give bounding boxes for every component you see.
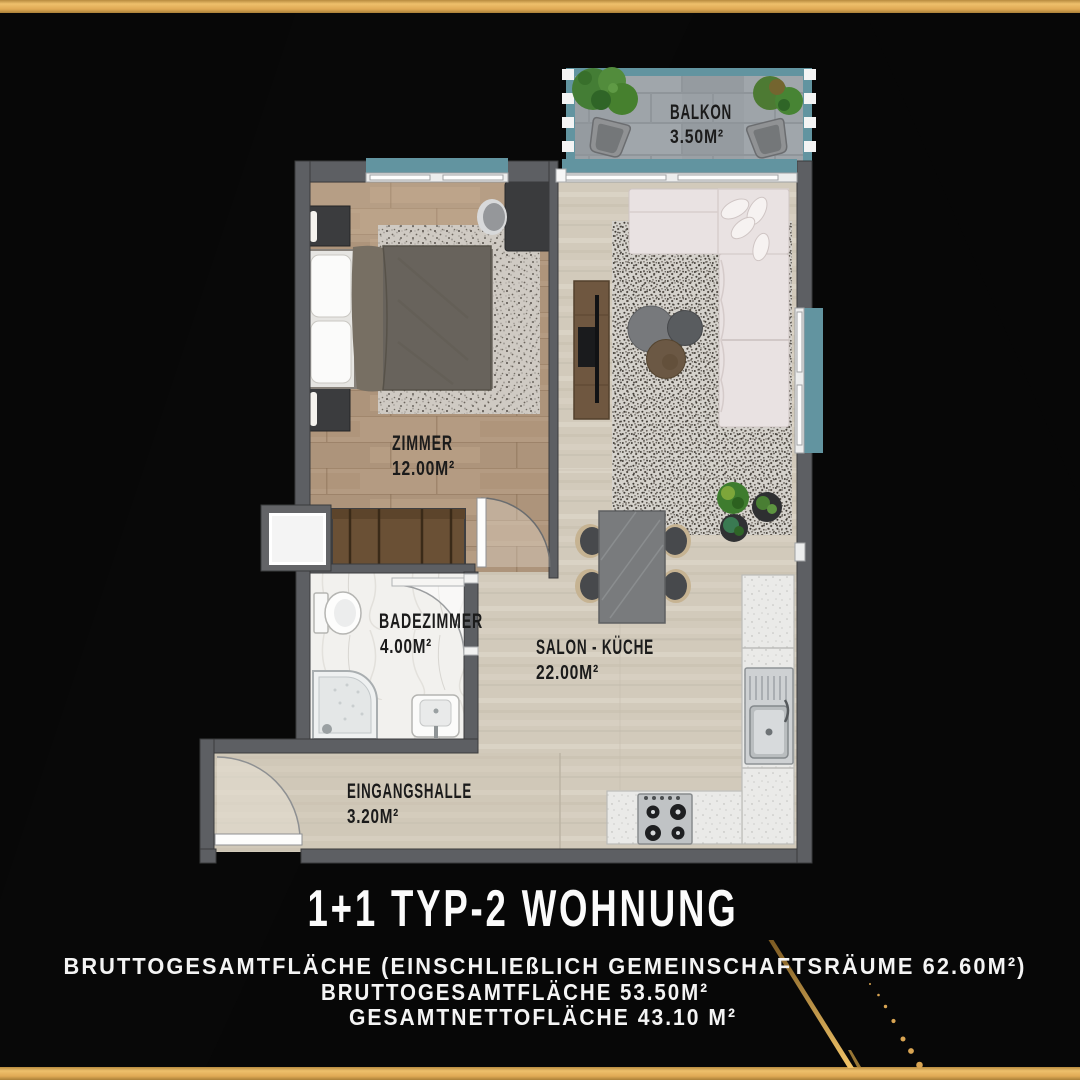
svg-text:SALON - KÜCHE: SALON - KÜCHE	[536, 636, 654, 659]
svg-text:12.00M²: 12.00M²	[392, 458, 455, 480]
svg-text:ZIMMER: ZIMMER	[392, 432, 453, 455]
svg-text:GESAMTNETTOFLÄCHE 43.10 M²: GESAMTNETTOFLÄCHE 43.10 M²	[349, 1004, 737, 1030]
svg-text:1+1 TYP-2 WOHNUNG: 1+1 TYP-2 WOHNUNG	[308, 880, 739, 938]
svg-text:BRUTTOGESAMTFLÄCHE (EINSCHLIEß: BRUTTOGESAMTFLÄCHE (EINSCHLIEßLICH GEMEI…	[64, 953, 1027, 979]
svg-text:3.50M²: 3.50M²	[670, 127, 724, 148]
svg-text:4.00M²: 4.00M²	[380, 636, 432, 658]
svg-text:3.20M²: 3.20M²	[347, 806, 399, 828]
svg-text:EINGANGSHALLE: EINGANGSHALLE	[347, 780, 472, 803]
svg-text:BALKON: BALKON	[670, 101, 732, 124]
svg-text:BRUTTOGESAMTFLÄCHE 53.50M²: BRUTTOGESAMTFLÄCHE 53.50M²	[321, 979, 709, 1005]
svg-text:BADEZIMMER: BADEZIMMER	[379, 610, 483, 633]
svg-text:22.00M²: 22.00M²	[536, 662, 599, 684]
